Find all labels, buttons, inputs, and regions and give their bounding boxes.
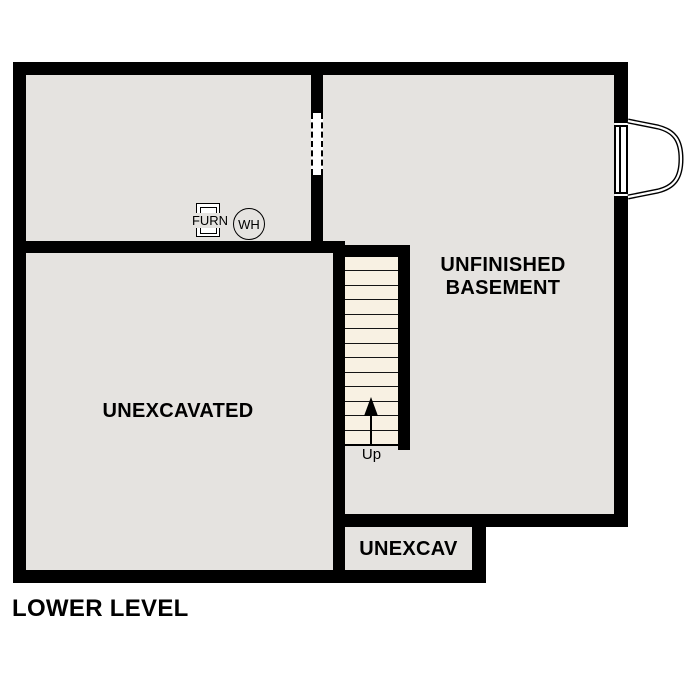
water-heater-icon: WH [233, 208, 265, 240]
wall-interior-vertical-upper [311, 75, 323, 113]
stair-tread [345, 314, 398, 328]
window-mullion [619, 127, 621, 192]
wall-outer-bottom [13, 570, 486, 583]
up-arrow-icon [364, 397, 378, 416]
stair-tread [345, 257, 398, 270]
basement-label-line1: UNFINISHED [395, 254, 611, 277]
water-heater-label: WH [238, 217, 260, 232]
wall-stairs-left [333, 241, 345, 583]
stair-tread [345, 270, 398, 284]
wall-divider-horizontal [13, 241, 345, 253]
stair-tread [345, 357, 398, 371]
wall-outer-right-lower [614, 196, 628, 527]
up-arrow-stem [370, 413, 372, 445]
unexcav-small-label: UNEXCAV [345, 538, 472, 561]
stair-tread [345, 372, 398, 386]
basement-label: UNFINISHED BASEMENT [395, 254, 611, 300]
page-title: LOWER LEVEL [12, 595, 189, 623]
wall-interior-vertical-lower [311, 175, 323, 253]
wall-outer-left [13, 62, 26, 583]
stair-tread [345, 299, 398, 313]
utility-room-area [26, 75, 311, 241]
basement-label-line2: BASEMENT [395, 277, 611, 300]
wall-opening-dashed [311, 113, 323, 175]
unexcavated-label: UNEXCAVATED [78, 400, 278, 423]
floor-plan: Up FURN WH UNFINISHED BASEMENT UNEXCAVAT… [0, 0, 687, 687]
bow-window-icon [625, 115, 685, 205]
furnace-label: FURN [187, 213, 233, 228]
wall-outer-right-upper [614, 62, 628, 123]
stair-tread [345, 328, 398, 342]
stair-tread [345, 343, 398, 357]
stair-tread [345, 285, 398, 299]
wall-outer-top [13, 62, 628, 75]
stairs-up-label: Up [343, 447, 400, 463]
wall-unexcav-right [472, 514, 486, 583]
